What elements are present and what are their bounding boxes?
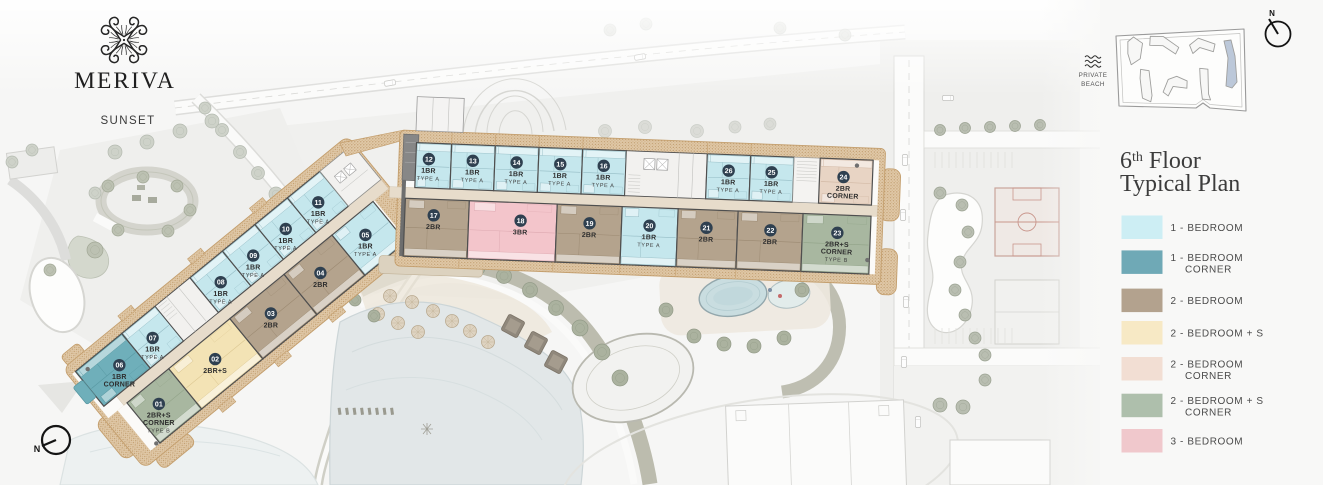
svg-text:1BR: 1BR [213, 291, 228, 298]
svg-text:2 - BEDROOM + S: 2 - BEDROOM + S [1171, 329, 1264, 340]
svg-text:03: 03 [267, 311, 275, 318]
svg-text:CORNER: CORNER [821, 248, 853, 256]
svg-text:TYPE A: TYPE A [274, 246, 297, 252]
svg-text:25: 25 [768, 170, 776, 177]
svg-text:18: 18 [517, 218, 525, 225]
svg-text:1BR: 1BR [358, 244, 373, 251]
svg-text:11: 11 [315, 200, 323, 207]
svg-text:3 - BEDROOM: 3 - BEDROOM [1171, 437, 1244, 448]
svg-text:2 - BEDROOM: 2 - BEDROOM [1171, 296, 1244, 307]
svg-text:16: 16 [600, 163, 608, 170]
svg-text:TYPE B: TYPE B [825, 257, 848, 264]
svg-text:07: 07 [149, 335, 157, 342]
svg-text:TYPE A: TYPE A [354, 252, 377, 258]
svg-text:23: 23 [833, 230, 841, 237]
svg-text:CORNER: CORNER [1185, 264, 1232, 275]
svg-text:01: 01 [155, 401, 163, 408]
svg-text:21: 21 [702, 225, 710, 232]
svg-text:2 - BEDROOM: 2 - BEDROOM [1171, 360, 1244, 371]
svg-text:CORNER: CORNER [1185, 408, 1232, 419]
svg-text:2BR: 2BR [699, 236, 714, 244]
svg-text:1BR: 1BR [642, 234, 657, 242]
svg-text:TYPE A: TYPE A [209, 299, 232, 305]
svg-text:2BR+S: 2BR+S [147, 413, 171, 420]
svg-text:TYPE A: TYPE A [759, 189, 782, 196]
svg-text:SUNSET: SUNSET [100, 115, 155, 127]
svg-text:13: 13 [469, 158, 477, 165]
svg-text:14: 14 [513, 160, 521, 167]
svg-text:TYPE A: TYPE A [141, 355, 164, 361]
svg-text:02: 02 [211, 357, 219, 364]
svg-text:1BR: 1BR [596, 174, 611, 182]
svg-text:CORNER: CORNER [1185, 371, 1232, 382]
svg-text:2BR: 2BR [264, 322, 279, 329]
svg-text:1BR: 1BR [764, 181, 779, 189]
svg-text:TYPE A: TYPE A [417, 176, 440, 183]
svg-text:1 - BEDROOM: 1 - BEDROOM [1171, 223, 1244, 234]
svg-text:2BR: 2BR [582, 232, 597, 240]
svg-text:N: N [34, 444, 41, 454]
svg-text:24: 24 [839, 174, 847, 181]
svg-text:Typical Plan: Typical Plan [1120, 171, 1240, 197]
svg-text:1BR: 1BR [465, 169, 480, 177]
svg-text:MERIVA: MERIVA [74, 68, 176, 94]
svg-text:20: 20 [645, 223, 653, 230]
svg-text:22: 22 [766, 228, 774, 235]
svg-text:TYPE A: TYPE A [637, 242, 660, 249]
svg-text:1BR: 1BR [509, 171, 524, 179]
svg-text:1BR: 1BR [278, 238, 293, 245]
svg-text:2BR: 2BR [836, 186, 851, 194]
svg-text:CORNER: CORNER [827, 193, 859, 201]
svg-text:15: 15 [556, 162, 564, 169]
svg-text:BEACH: BEACH [1081, 81, 1105, 88]
svg-text:TYPE A: TYPE A [461, 178, 484, 185]
svg-text:2 - BEDROOM + S: 2 - BEDROOM + S [1171, 396, 1264, 407]
svg-text:TYPE A: TYPE A [307, 220, 330, 226]
svg-text:05: 05 [362, 232, 370, 239]
svg-text:N: N [1269, 9, 1275, 18]
svg-text:26: 26 [725, 168, 733, 175]
svg-text:04: 04 [317, 270, 325, 277]
svg-text:2BR+S: 2BR+S [203, 368, 227, 375]
svg-text:2BR: 2BR [426, 224, 441, 232]
svg-text:TYPE A: TYPE A [716, 187, 739, 194]
svg-text:TYPE B: TYPE B [147, 429, 170, 435]
svg-text:1 - BEDROOM: 1 - BEDROOM [1171, 253, 1244, 264]
svg-text:TYPE A: TYPE A [591, 183, 614, 190]
svg-text:1BR: 1BR [246, 264, 261, 271]
svg-text:2BR: 2BR [313, 282, 328, 289]
svg-text:12: 12 [425, 156, 433, 163]
svg-text:06: 06 [115, 363, 123, 370]
svg-text:TYPE A: TYPE A [504, 179, 527, 186]
svg-text:10: 10 [282, 226, 290, 233]
svg-text:17: 17 [430, 213, 438, 220]
svg-text:1BR: 1BR [552, 173, 567, 181]
svg-text:CORNER: CORNER [104, 381, 136, 388]
svg-text:PRIVATE: PRIVATE [1079, 72, 1108, 79]
svg-text:19: 19 [585, 221, 593, 228]
svg-text:CORNER: CORNER [143, 420, 175, 427]
svg-text:TYPE A: TYPE A [242, 273, 265, 279]
svg-text:3BR: 3BR [513, 229, 528, 237]
svg-text:1BR: 1BR [112, 374, 127, 381]
svg-text:1BR: 1BR [311, 211, 326, 218]
svg-text:2BR: 2BR [763, 239, 778, 247]
svg-text:08: 08 [217, 280, 225, 287]
svg-text:1BR: 1BR [145, 347, 160, 354]
svg-text:1BR: 1BR [721, 179, 736, 187]
svg-text:TYPE A: TYPE A [548, 181, 571, 188]
svg-text:1BR: 1BR [421, 168, 436, 176]
svg-text:09: 09 [249, 253, 257, 260]
